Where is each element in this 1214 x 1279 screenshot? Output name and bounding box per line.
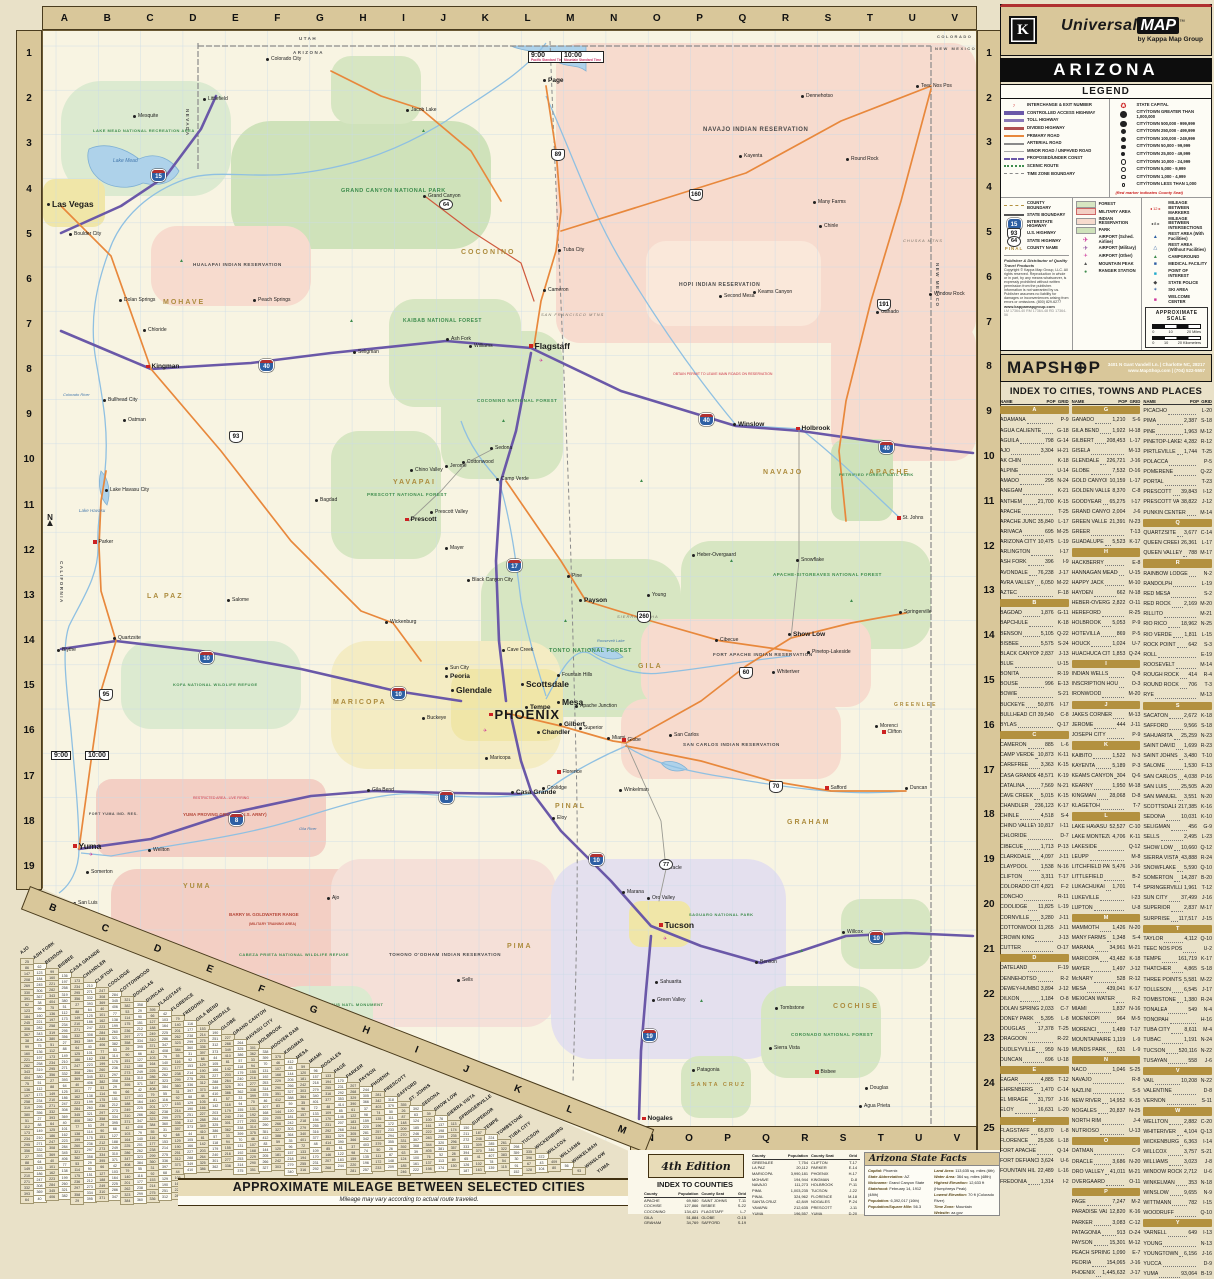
index-entry-grid: D-7	[1056, 831, 1069, 841]
index-entry-name: SELIGMAN	[1143, 822, 1170, 832]
index-entry-grid: J-8	[1199, 1157, 1212, 1167]
index-entry-name: SAN LUIS	[1143, 782, 1167, 792]
index-entry-grid: S-18	[1199, 416, 1212, 426]
edition-box: 4th Edition	[648, 1154, 744, 1178]
index-entry-grid: T-23	[1199, 477, 1212, 487]
grid-number: 21	[983, 944, 994, 955]
index-entry-grid: U-6	[1199, 1167, 1212, 1177]
index-entry-name: OVERGAARD	[1072, 1177, 1105, 1187]
map-city: Sun City	[445, 665, 469, 671]
index-entry-name: QUEEN VALLEY	[1143, 548, 1182, 558]
map-label: PRESCOTT NATIONAL FOREST	[367, 493, 447, 498]
leader-dots	[1162, 1043, 1183, 1044]
leader-dots	[1169, 465, 1196, 466]
index-entry-name: BYLAS	[1000, 720, 1017, 730]
grid-letter: H	[361, 1024, 372, 1037]
index-entry-pop: 4,038	[1184, 772, 1197, 782]
index-entry: QUEEN VALLEY788M-17	[1143, 548, 1212, 558]
grid-letter: U	[909, 13, 916, 24]
index-entry-pop: 6,363	[1184, 1137, 1197, 1147]
index-entry-name: ARIVACA	[1000, 527, 1022, 537]
leader-dots	[1096, 1276, 1101, 1277]
map-label: YAVAPAI	[393, 479, 436, 486]
index-entry: FOUNTAIN HILLS22,489L-16	[1000, 1166, 1069, 1176]
grid-number: 7	[986, 317, 992, 328]
legend-symbol-item: ■POINT OF INTEREST	[1145, 269, 1208, 278]
index-entry-pop: 304	[1117, 771, 1126, 781]
index-entry-name: BLACK CANYON CITY	[1000, 649, 1039, 659]
leader-dots	[1105, 1174, 1109, 1175]
index-entry: PIMA2,387S-18	[1143, 416, 1212, 426]
leader-dots	[1172, 1205, 1187, 1206]
index-entry-grid: I-15	[1199, 1198, 1212, 1208]
city-marker-icon	[542, 787, 545, 790]
index-entry: DONEY PARK5,395L-8	[1000, 1014, 1069, 1024]
grid-letter: E	[232, 13, 239, 24]
leader-dots	[1166, 769, 1183, 770]
leader-dots	[1177, 536, 1183, 537]
index-entry: MOENKOPI964M-5	[1072, 1014, 1141, 1024]
index-entry-grid: L-15	[1199, 630, 1212, 640]
city-marker-icon	[715, 639, 718, 642]
index-entry-pop: 1,961	[1184, 883, 1197, 893]
index-entry: CHANDLER236,123K-17	[1000, 801, 1069, 811]
county-cell: 196,557	[782, 1211, 811, 1217]
index-entry-grid: S-11	[1199, 1096, 1212, 1106]
index-entry-name: OATMAN	[1072, 1146, 1094, 1156]
index-entry: OVERGAARDO-11	[1072, 1177, 1141, 1187]
index-entry-grid: Q-22	[1199, 467, 1212, 477]
county-cell: YUMA	[752, 1211, 782, 1217]
map-city-label: Gila Bend	[372, 787, 394, 793]
map-city-label: Sedona	[495, 445, 512, 451]
index-entry-pop: 7,569	[1041, 781, 1054, 791]
index-entry-name: ROUND ROCK	[1143, 680, 1178, 690]
index-entry-grid: N-22	[1199, 1076, 1212, 1086]
leader-dots	[1094, 1164, 1111, 1165]
city-marker-icon	[69, 233, 72, 236]
leader-dots	[1166, 1053, 1177, 1054]
index-entry-grid: L-20	[1199, 406, 1212, 416]
index-entry-pop: 2,495	[1184, 832, 1197, 842]
index-entry-name: GOLDEN VALLEY	[1072, 486, 1111, 496]
index-entry-grid: P-9	[1127, 618, 1140, 628]
state-facts-title: Arizona State Facts	[865, 1153, 999, 1166]
leader-dots	[1155, 698, 1196, 699]
grid-letter: K	[482, 13, 489, 24]
legend-item-label: COUNTY NAME	[1027, 246, 1058, 251]
city-marker-icon	[622, 738, 626, 742]
interstate-shield-icon: 10	[589, 853, 604, 866]
index-entry: NUTRIOSOU-13	[1072, 1126, 1141, 1136]
leader-dots	[1022, 514, 1053, 515]
index-entry-pop: 1,522	[1112, 751, 1125, 761]
index-entry-name: GOODYEAR	[1072, 497, 1102, 507]
fact-row: Highest Elevation: 12,633 ft (Humphreys …	[934, 1180, 996, 1192]
index-entry: MARANA34,961M-21	[1072, 943, 1141, 953]
map-city: Flagstaff	[529, 341, 570, 351]
city-marker-icon	[557, 674, 560, 677]
index-entry-grid: K-17	[1056, 801, 1069, 811]
index-entry-name: RIO VERDE	[1143, 630, 1172, 640]
index-entry-name: SIERRA VISTA	[1143, 853, 1178, 863]
leader-dots	[1023, 616, 1040, 617]
city-marker-icon	[579, 727, 582, 730]
index-entry-name: HAYDEN	[1072, 588, 1093, 598]
index-entry-grid: K-18	[1056, 618, 1069, 628]
index-entry-name: TOMBSTONE	[1143, 995, 1176, 1005]
grid-bar-left: 12345678910111213141516171819	[16, 30, 42, 890]
index-entry-grid: K-15	[1127, 1096, 1140, 1106]
index-entry-grid: L-6	[1056, 740, 1069, 750]
city-marker-icon	[842, 931, 845, 934]
leader-dots	[1174, 881, 1180, 882]
index-entry: PATAGONIA913O-24	[1072, 1228, 1141, 1238]
legend-sshield-icon: 64	[1004, 238, 1024, 244]
index-entry: SOMERTON14,287B-20	[1143, 873, 1212, 883]
shield-number: 60	[743, 670, 750, 676]
index-entry: HAPPY JACKM-10	[1072, 578, 1141, 588]
legend-d4-icon	[1113, 159, 1133, 165]
us-highway-shield-icon: 191	[877, 299, 891, 311]
index-entry: AZTECF-18	[1000, 588, 1069, 598]
leader-dots	[1105, 585, 1124, 586]
map-label: CALIFORNIA	[58, 561, 63, 604]
index-entry-name: BOUSE	[1000, 679, 1018, 689]
legend-city-item: CITY/TOWN 250,000 - 499,999	[1113, 129, 1208, 135]
map-city-label: Window Rock	[934, 291, 965, 297]
index-entry-name: KAIBITO	[1072, 751, 1092, 761]
index-entry-grid: K-18	[1127, 954, 1140, 964]
index-entry-pop: 3,363	[1041, 760, 1054, 770]
map-city: Grand Canyon	[423, 193, 461, 199]
mileage-caption: APPROXIMATE MILEAGE BETWEEN SELECTED CIT…	[178, 1178, 640, 1206]
index-entry-name: ROUGH ROCK	[1143, 670, 1179, 680]
index-entry-grid: J-16	[1199, 893, 1212, 903]
index-entry-grid: M-2	[1127, 1197, 1140, 1207]
grid-number: 2	[986, 93, 992, 104]
index-entry-name: FLORENCE	[1000, 1136, 1028, 1146]
legend-item-label: ARTERIAL ROAD	[1027, 141, 1062, 146]
shield-number: 95	[103, 692, 110, 698]
index-entry-grid: L-17	[1127, 436, 1140, 446]
city-marker-icon	[406, 109, 409, 112]
index-entry-grid: Q-14	[1056, 1146, 1069, 1156]
index-entry-name: CAREFREE	[1000, 760, 1028, 770]
index-entry: THATCHER4,865S-18	[1143, 964, 1212, 974]
map-label: RESTRICTED AREA - LIVE FIRING	[193, 797, 249, 801]
index-entry: McNARY528R-12	[1072, 974, 1141, 984]
leader-dots	[1168, 1063, 1187, 1064]
index-entry-pop: 4,865	[1184, 964, 1197, 974]
grid-letter: Q	[738, 13, 746, 24]
map-city: Tucson	[659, 920, 694, 930]
index-entry-grid: K-17	[1127, 537, 1140, 547]
mileage-city-header: MESA	[295, 1047, 309, 1059]
index-entry-name: CAMP VERDE	[1000, 750, 1034, 760]
map-city: Parker	[93, 539, 113, 545]
map-label: YUMA PROVING GROUND (U.S. ARMY)	[183, 813, 267, 818]
grid-letter: D	[189, 13, 196, 24]
legend-item-label: RANGER STATION	[1099, 269, 1136, 274]
map-city-label: San Carlos	[674, 732, 699, 738]
shield-number: 10	[593, 858, 600, 864]
map-city: Dennehotso	[801, 93, 833, 99]
leader-dots	[1091, 535, 1124, 536]
legend-cap-icon: ✪	[1113, 103, 1133, 109]
map-city-label: Black Canyon City	[472, 577, 513, 583]
legend-road-item: MINOR ROAD / UNPAVED ROAD	[1004, 148, 1106, 154]
index-entry-pop: 31,797	[1038, 1095, 1054, 1105]
legend-item-label: INDIAN RESERVATION	[1099, 217, 1139, 226]
city-marker-icon	[123, 419, 126, 422]
city-marker-icon	[451, 689, 454, 692]
map-label: GREENLEE	[894, 703, 938, 708]
grid-letter: J	[441, 13, 447, 24]
map-city-label: Florence	[563, 769, 582, 775]
index-entry-pop: 649	[1188, 1228, 1197, 1238]
city-marker-icon	[367, 789, 370, 792]
index-entry-name: WICKENBURG	[1143, 1137, 1179, 1147]
leader-dots	[1101, 636, 1115, 637]
index-entry-grid: M-18	[1127, 781, 1140, 791]
index-entry-grid: T-13	[1127, 527, 1140, 537]
index-entry-name: VALENTINE	[1143, 1086, 1171, 1096]
leader-dots	[1164, 942, 1183, 943]
index-entry-name: ARIZONA CITY	[1000, 537, 1036, 547]
leader-dots	[1020, 646, 1040, 647]
index-entry-name: KLAGETOH	[1072, 801, 1100, 811]
index-entry-grid: R-24	[1199, 995, 1212, 1005]
leader-dots	[1173, 495, 1181, 496]
index-entry: PAYSON15,301M-12	[1072, 1238, 1141, 1248]
leader-dots	[1028, 1184, 1040, 1185]
index-entry-pop: 1,090	[1112, 1248, 1125, 1258]
index-entry-name: LITTLEFIELD	[1072, 872, 1104, 882]
index-entry-grid: R-2	[1056, 974, 1069, 984]
grid-number: 16	[983, 720, 994, 731]
map-label: GILA	[638, 663, 663, 670]
legend-divided-icon	[1004, 125, 1024, 131]
leader-dots	[1035, 758, 1037, 759]
leader-dots	[1174, 739, 1180, 740]
map-city-label: Chandler	[542, 729, 570, 736]
map-city: San Carlos	[669, 732, 699, 738]
index-entry-name: THREE POINTS	[1143, 975, 1181, 985]
map-city-label: Young	[652, 592, 666, 598]
map-city: Willcox	[842, 929, 863, 935]
city-marker-icon	[385, 621, 388, 624]
index-entry: BONITAR-19	[1000, 669, 1069, 679]
index-entry-name: NUTRIOSO	[1072, 1126, 1099, 1136]
index-entry-name: MARANA	[1072, 943, 1094, 953]
index-entry-grid: O-11	[1127, 598, 1140, 608]
legend-area-item: PARK	[1076, 227, 1139, 233]
index-entry-name: POLACCA	[1143, 457, 1168, 467]
leader-dots	[1113, 718, 1124, 719]
index-entry-name: PIRTLEVILLE	[1143, 447, 1175, 457]
index-entry-pop: 295	[1045, 476, 1054, 486]
index-entry-grid: D-8	[1127, 791, 1140, 801]
index-section-letter: H	[1072, 548, 1141, 556]
index-entry: KLAGETOHT-7	[1072, 801, 1141, 811]
index-entry-name: YOUNGTOWN	[1143, 1249, 1178, 1259]
map-city-label: Nogales	[648, 1115, 673, 1122]
map-city: Winslow	[733, 421, 764, 428]
city-marker-icon	[315, 499, 318, 502]
index-entry-name: PAGE	[1072, 1197, 1086, 1207]
index-entry-name: EHRENBERG	[1000, 1085, 1033, 1095]
leader-dots	[1189, 576, 1196, 577]
legend-welcome-icon: ■	[1145, 297, 1165, 303]
index-entry-pop: 3,280	[1041, 913, 1054, 923]
index-entry-name: LUPTON	[1072, 903, 1093, 913]
index-entry-grid: N-16	[1127, 1004, 1140, 1014]
index-entry-name: CATALINA	[1000, 781, 1025, 791]
index-entry-grid: P-5	[1127, 629, 1140, 639]
grid-number: 23	[983, 1033, 994, 1044]
index-entry-name: APACHE JUNCTION	[1000, 517, 1036, 527]
legend-park-icon	[1076, 227, 1096, 233]
index-section-letter: E	[1000, 1066, 1069, 1074]
map-label: Colorado River	[63, 393, 90, 397]
grid-number: 12	[983, 541, 994, 552]
index-entry-grid: L-23	[1199, 832, 1212, 842]
legend-item-label: POINT OF INTEREST	[1168, 269, 1208, 278]
map-city: Williams	[469, 343, 493, 349]
index-entry: SACATON2,672K-18	[1143, 711, 1212, 721]
map-city: Maricopa	[485, 755, 511, 761]
index-entry-pop: 236,123	[1035, 801, 1054, 811]
index-entry-grid: I-11	[1056, 821, 1069, 831]
city-marker-icon	[410, 469, 413, 472]
index-entry-name: NAVAJO	[1072, 1075, 1092, 1085]
county-table-right: CountyPopulationCounty SeatGridGREENLEE7…	[752, 1153, 860, 1216]
leader-dots	[1095, 443, 1106, 444]
index-entry-pop: 4,282	[1184, 437, 1197, 447]
index-entry-grid: L-19	[1056, 537, 1069, 547]
map-city: Bisbee	[815, 1069, 836, 1075]
index-entry: SURPRISE117,517J-15	[1143, 914, 1212, 924]
index-entry-name: POMERENE	[1143, 467, 1173, 477]
index-entry-name: PRESCOTT VALLEY	[1143, 497, 1179, 507]
map-city-label: Buckeye	[427, 715, 446, 721]
index-entry-grid: T-17	[1056, 872, 1069, 882]
index-entry-name: CLIFTON	[1000, 872, 1022, 882]
grid-letter: S	[825, 13, 832, 24]
index-entry: TUCSON520,116N-22	[1143, 1046, 1212, 1056]
index-entry-name: TONOPAH	[1143, 1015, 1168, 1025]
state-facts-box: Arizona State Facts Capital: PhoenixStat…	[864, 1152, 1000, 1216]
index-entry-name: APACHE	[1000, 507, 1021, 517]
index-entry-name: TONALEA	[1143, 1005, 1167, 1015]
us-highway-shield-icon: 93	[229, 431, 243, 443]
index-entry-pop: 26,361	[1181, 538, 1197, 548]
map-city: Jacob Lake	[406, 107, 437, 113]
map-city-label: Duncan	[910, 785, 927, 791]
leader-dots	[1179, 759, 1183, 760]
index-entry-pop: 5,476	[1112, 862, 1125, 872]
county-index-title: INDEX TO COUNTIES	[644, 1180, 746, 1189]
index-entry: FLAGSTAFF65,870L-8	[1000, 1126, 1069, 1136]
index-entry-pop: 996	[1045, 679, 1054, 689]
index-entry-pop: 10,208	[1181, 1076, 1197, 1086]
city-marker-icon	[266, 58, 269, 61]
county-cell: S-19	[734, 1220, 746, 1226]
leader-dots	[1034, 1093, 1040, 1094]
leader-dots	[1170, 1195, 1183, 1196]
index-entry-grid: K-21	[1056, 486, 1069, 496]
legend-city-item: CITY/TOWN LESS THAN 1,000	[1113, 182, 1208, 188]
index-entry-grid: I-17	[1056, 547, 1069, 557]
index-entry: PARKER3,083C-12	[1072, 1218, 1141, 1228]
map-city: St. Johns	[897, 515, 923, 521]
index-column: NAMEPOP GRIDAADAMANAP-9AGUA CALIENTEG-18…	[1000, 399, 1069, 1279]
index-entry-grid: Q-12	[1127, 842, 1140, 852]
index-entry-grid: G-18	[1056, 426, 1069, 436]
index-entry-name: CUTTER	[1000, 943, 1021, 953]
index-entry-pop: 396	[1045, 557, 1054, 567]
index-entry-name: LEUPP	[1072, 852, 1089, 862]
map-city: Agua Prieta	[859, 1103, 890, 1109]
index-entry-name: HACKBERRY	[1072, 558, 1104, 568]
map-city: Tombstone	[775, 1005, 804, 1011]
index-entry: PINE1,963M-12	[1143, 427, 1212, 437]
map-label: NEW MEXICO	[935, 47, 976, 51]
index-entry: ARLINGTONI-17	[1000, 547, 1069, 557]
index-entry: AK CHINK-18	[1000, 456, 1069, 466]
grid-number: 10	[983, 451, 994, 462]
map-city: Globe	[622, 737, 641, 743]
map-canvas[interactable]: MOHAVECOCONINONAVAJOAPACHEYAVAPAILA PAZM…	[42, 30, 977, 1152]
map-city: Heber-Overgaard	[692, 552, 736, 558]
index-entry-grid: J-4	[1127, 1116, 1140, 1126]
legend-item-label: MINOR ROAD / UNPAVED ROAD	[1027, 149, 1091, 154]
leader-dots	[1172, 607, 1183, 608]
index-entry-pop: 1,445,632	[1102, 1268, 1125, 1278]
mileage-city-header: MIAMI	[308, 1052, 323, 1065]
city-marker-icon	[105, 489, 108, 492]
map-label: Lake Mead	[113, 159, 138, 164]
index-entry-name: ROCK POINT	[1143, 640, 1175, 650]
index-entry-grid: M-4	[1199, 1025, 1212, 1035]
grid-number: 14	[983, 630, 994, 641]
index-entry: SUPERIOR2,837M-17	[1143, 903, 1212, 913]
index-entry-name: SOMERTON	[1143, 873, 1173, 883]
map-city-label: Bisbee	[821, 1069, 836, 1075]
legend-road-item: PROPOSED/UNDER CONST	[1004, 156, 1106, 162]
leader-dots	[1159, 1277, 1180, 1278]
legend-roads: 7INTERCHANGE & EXIT NUMBERCONTROLLED ACC…	[1001, 99, 1110, 197]
index-entry-name: JAKES CORNER	[1072, 710, 1112, 720]
grid-number: 12	[23, 545, 34, 556]
index-entry: VERNONS-11	[1143, 1096, 1212, 1106]
city-marker-icon	[788, 633, 791, 636]
leader-dots	[1176, 668, 1196, 669]
index-entry: VALENTINED-8	[1143, 1086, 1212, 1096]
map-label: COCONINO	[461, 249, 516, 256]
index-entry: HANNAGAN MEADOWU-15	[1072, 568, 1141, 578]
index-entry: BOWIES-21	[1000, 689, 1069, 699]
map-city: Ajo	[327, 895, 339, 901]
index-entry-grid: M-21	[1199, 609, 1212, 619]
index-entry-grid: G-9	[1199, 822, 1212, 832]
index-entry-name: MOUNTAINAIRE	[1072, 1035, 1111, 1045]
index-entry-name: ADAMANA	[1000, 415, 1026, 425]
grid-number: 4	[986, 182, 992, 193]
mileage-city-header: YUMA	[596, 1161, 610, 1174]
index-entry-pop: 15,301	[1109, 1238, 1125, 1248]
